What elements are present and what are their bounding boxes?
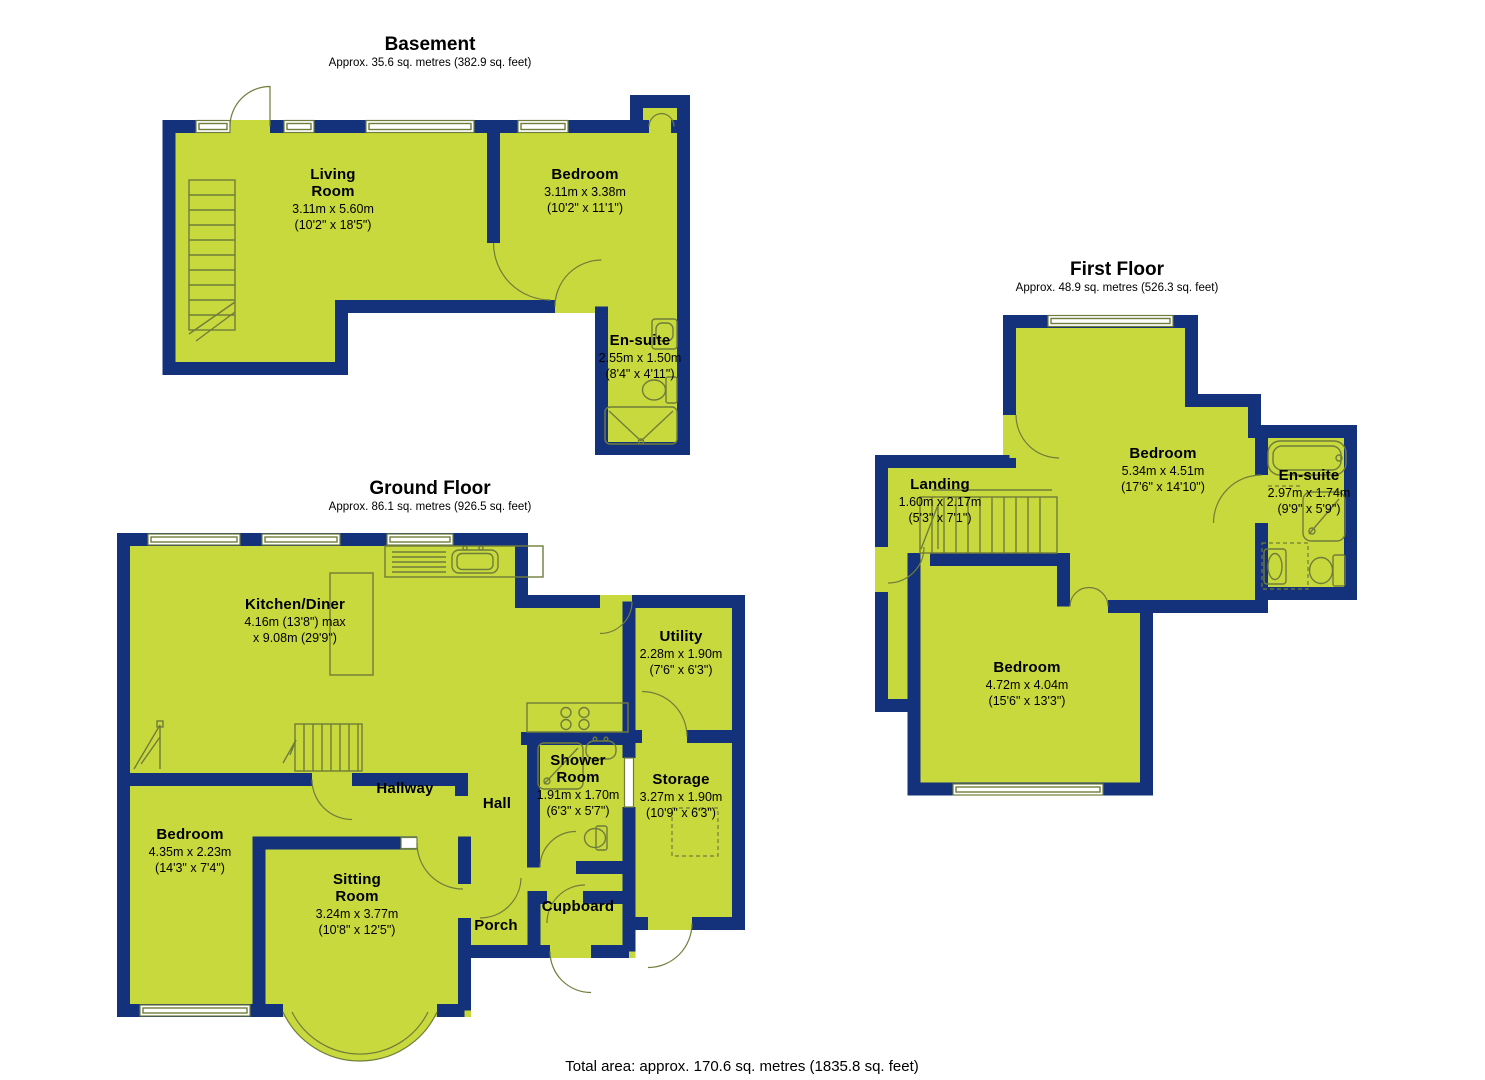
ground-floor-subtitle: Approx. 86.1 sq. metres (926.5 sq. feet)	[329, 501, 532, 513]
room-label-basement-ensuite: En-suite 2.55m x 1.50m (8'4" x 4'11")	[599, 333, 682, 382]
room-label-landing: Landing 1.60m x 2.17m (5'3" x 7'1")	[899, 477, 982, 526]
room-label-gf-bedroom: Bedroom 4.35m x 2.23m (14'3" x 7'4")	[149, 827, 232, 876]
floorplan-canvas	[0, 0, 1485, 1080]
room-label-ff-bedroom-1: Bedroom 5.34m x 4.51m (17'6" x 14'10")	[1121, 446, 1205, 495]
basement-title: Basement	[385, 34, 476, 56]
room-label-ff-ensuite: En-suite 2.97m x 1.74m (9'9" x 5'9")	[1268, 468, 1351, 517]
room-label-basement-living-room: Living Room 3.11m x 5.60m (10'2" x 18'5"…	[292, 167, 374, 233]
room-label-sitting-room: Sitting Room 3.24m x 3.77m (10'8" x 12'5…	[316, 872, 399, 938]
room-label-kitchen-diner: Kitchen/Diner 4.16m (13'8") max x 9.08m …	[244, 597, 345, 646]
room-label-shower-room: Shower Room 1.91m x 1.70m (6'3" x 5'7")	[537, 753, 620, 819]
room-label-storage: Storage 3.27m x 1.90m (10'9" x 6'3")	[640, 772, 723, 821]
floorplan-page: Basement Approx. 35.6 sq. metres (382.9 …	[0, 0, 1485, 1080]
basement-floor-area	[175, 95, 690, 455]
basement-plan	[169, 87, 690, 456]
room-label-utility: Utility 2.28m x 1.90m (7'6" x 6'3")	[640, 629, 723, 678]
room-label-porch: Porch	[474, 918, 518, 935]
first-floor-plan	[875, 315, 1357, 796]
room-label-ff-bedroom-2: Bedroom 4.72m x 4.04m (15'6" x 13'3")	[986, 660, 1069, 709]
total-area-text: Total area: approx. 170.6 sq. metres (18…	[565, 1058, 919, 1075]
first-floor-subtitle: Approx. 48.9 sq. metres (526.3 sq. feet)	[1016, 282, 1219, 294]
first-floor-title: First Floor	[1070, 259, 1164, 281]
ground-floor-title: Ground Floor	[369, 478, 490, 500]
basement-subtitle: Approx. 35.6 sq. metres (382.9 sq. feet)	[329, 57, 532, 69]
room-label-basement-bedroom: Bedroom 3.11m x 3.38m (10'2" x 11'1")	[544, 167, 626, 216]
storage-outer-door-arc	[648, 924, 692, 968]
room-label-cupboard: Cupboard	[542, 899, 614, 916]
room-label-hallway: Hallway	[376, 781, 433, 798]
room-label-hall: Hall	[483, 796, 511, 813]
